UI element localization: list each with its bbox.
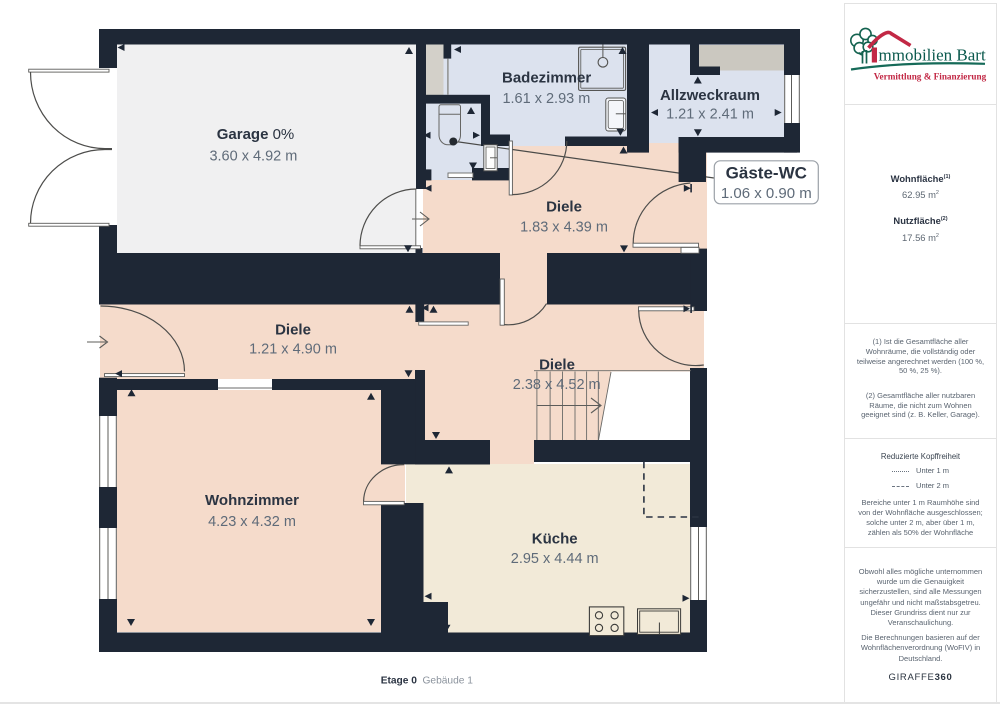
- svg-text:Diele: Diele: [546, 199, 582, 216]
- svg-text:Küche: Küche: [532, 531, 578, 548]
- svg-text:2.38 x 4.52 m: 2.38 x 4.52 m: [513, 377, 601, 393]
- svg-text:Badezimmer: Badezimmer: [502, 70, 591, 87]
- svg-text:3.60 x 4.92 m: 3.60 x 4.92 m: [209, 149, 297, 165]
- svg-text:Garage 0%: Garage 0%: [217, 126, 295, 143]
- svg-text:1.83 x 4.39 m: 1.83 x 4.39 m: [520, 219, 608, 235]
- svg-text:1.61 x 2.93 m: 1.61 x 2.93 m: [502, 91, 590, 107]
- svg-text:mmobilien Bart: mmobilien Bart: [879, 46, 986, 65]
- svg-text:Gebäude 1: Gebäude 1: [423, 676, 474, 687]
- svg-text:1.21 x 2.41 m: 1.21 x 2.41 m: [666, 106, 754, 122]
- svg-text:Gäste-WC: Gäste-WC: [726, 164, 807, 183]
- svg-text:Etage 0: Etage 0: [381, 676, 418, 687]
- svg-text:Wohnzimmer: Wohnzimmer: [205, 492, 299, 509]
- svg-text:1.21 x 4.90 m: 1.21 x 4.90 m: [249, 342, 337, 358]
- svg-text:Diele: Diele: [275, 322, 311, 339]
- svg-text:Vermittlung & Finanzierung: Vermittlung & Finanzierung: [874, 72, 987, 82]
- svg-text:1.06 x 0.90 m: 1.06 x 0.90 m: [721, 185, 812, 202]
- svg-text:Allzweckraum: Allzweckraum: [660, 87, 760, 104]
- svg-text:Diele: Diele: [539, 357, 575, 374]
- svg-text:4.23 x 4.32 m: 4.23 x 4.32 m: [208, 514, 296, 530]
- svg-text:2.95 x 4.44 m: 2.95 x 4.44 m: [511, 551, 599, 567]
